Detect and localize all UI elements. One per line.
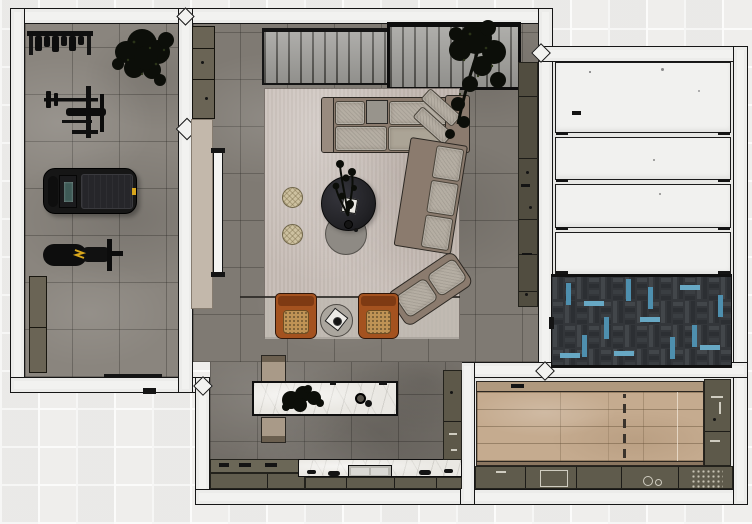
panel-speck: [659, 193, 661, 195]
sofa-seat-cushion: [421, 214, 454, 251]
ottoman: [282, 224, 303, 245]
cooktop-counter-surface: [210, 459, 305, 473]
sink-basin: [371, 468, 388, 475]
strip-item: [521, 184, 530, 187]
slatted-console-left: [262, 28, 389, 85]
white-panel-2: [555, 137, 731, 180]
sofa-armrest: [322, 98, 334, 152]
island-plant: [278, 383, 330, 415]
sofa-seat-cushion: [432, 145, 465, 182]
chair-cushion: [283, 310, 309, 334]
sofa-seat-cushion: [426, 180, 459, 217]
counter-item: [444, 469, 453, 473]
counter-item: [496, 471, 506, 473]
treadmill: [43, 168, 137, 214]
chair-cushion: [366, 310, 391, 334]
cooktop-burner: [265, 463, 277, 467]
cabinet-divider: [193, 79, 214, 80]
treadmill-end-cap: [48, 176, 58, 207]
island-fixture: [379, 382, 387, 385]
island-bench-bottom: [261, 417, 286, 443]
coffee-table-plant: [330, 148, 364, 220]
white-panel-1: [555, 62, 731, 133]
counter-item: [328, 471, 340, 476]
panel-tick: [556, 179, 568, 182]
dumbbell-rack: [27, 29, 93, 59]
gym-storage-cabinet: [29, 276, 47, 373]
island-bowl-small: [365, 400, 372, 407]
cabinet-divider: [394, 478, 395, 488]
wall-wardrobe-top: [538, 46, 748, 62]
cabinet-item: [205, 97, 208, 100]
island-bench-top: [261, 355, 286, 382]
cabinet-divider: [346, 478, 347, 488]
panel-tick: [718, 132, 730, 135]
treadmill-accent: [132, 188, 136, 195]
window-marker-nub: [143, 388, 156, 394]
utility-bottom-counter: [475, 466, 733, 489]
bench-cap: [262, 356, 285, 362]
counter-item: [419, 470, 431, 475]
counter-divider: [525, 467, 526, 488]
treadmill-screen: [64, 182, 73, 202]
weight-bench: [43, 238, 125, 272]
counter-sink: [348, 465, 392, 477]
wood-platform-floor: [476, 392, 704, 461]
ottoman: [282, 187, 303, 208]
utility-side-counter: [704, 379, 731, 466]
round-side-table: [320, 304, 353, 337]
herringbone-pattern: [552, 277, 731, 365]
cooktop-burner: [239, 463, 251, 467]
counter-item: [307, 470, 316, 474]
cabinet-divider: [444, 421, 461, 422]
island-fixture: [330, 382, 336, 385]
cabinet-divider: [193, 48, 214, 49]
light-seam-line: [677, 392, 678, 461]
cabinet-item: [449, 433, 457, 435]
strip-item: [525, 293, 528, 296]
treadmill-console: [59, 175, 77, 208]
strip-item: [522, 253, 532, 255]
door-cap: [211, 272, 225, 277]
cabinet-divider: [30, 327, 46, 328]
marble-sink-counter: [298, 459, 462, 477]
sink-basin: [351, 468, 369, 475]
strip-divider: [519, 158, 537, 159]
counter-bowl: [643, 476, 653, 486]
cabinet-item: [450, 391, 453, 394]
wall-counter-strip: [518, 62, 538, 307]
beige-cabinet-band: [191, 119, 213, 309]
counter-item: [713, 418, 716, 421]
table-bowl-small: [354, 228, 358, 232]
counter-divider: [576, 467, 577, 488]
door-cap: [211, 148, 225, 153]
wood-band-top: [476, 381, 704, 392]
rug-tab: [549, 317, 554, 329]
white-panel-4: [555, 232, 731, 275]
lounge-chair: [358, 293, 399, 339]
panel-tick: [556, 132, 568, 135]
panel-tick: [556, 227, 568, 230]
herringbone-rug: [551, 274, 732, 368]
chair-back-band: [278, 296, 314, 306]
dashed-divider-line: [623, 394, 626, 458]
window-marker: [104, 374, 162, 378]
strip-divider: [519, 291, 537, 292]
table-bowl: [344, 220, 353, 229]
treadmill-belt: [81, 174, 133, 209]
strip-divider: [519, 96, 537, 97]
kitchen-tall-cabinet: [443, 370, 462, 460]
strip-item: [526, 171, 529, 174]
sliding-door: [213, 151, 223, 275]
cabinet-item: [201, 61, 204, 64]
counter-divider: [678, 467, 679, 488]
white-panel-3: [555, 184, 731, 228]
band-item: [511, 384, 524, 388]
panel-handle: [572, 111, 581, 115]
strip-item: [529, 206, 532, 209]
cabinet-divider: [436, 478, 437, 488]
counter-speckle-tray: [691, 469, 723, 489]
panel-speck: [589, 71, 591, 73]
bench-cap: [262, 436, 285, 442]
lounge-chair: [275, 293, 317, 339]
counter-item: [719, 402, 721, 414]
wall-utility-left: [460, 362, 475, 505]
counter-divider: [705, 431, 730, 432]
counter-item: [710, 440, 720, 442]
panel-tick: [718, 227, 730, 230]
sofa-tray: [366, 100, 388, 124]
wall-left-main: [10, 8, 25, 393]
sink-counter-cabinets: [305, 477, 462, 489]
cooktop-counter-cabinets: [210, 473, 305, 489]
wall-right-outer: [733, 46, 748, 505]
strip-divider: [519, 219, 537, 220]
floor-plan-scene: [0, 0, 752, 524]
counter-bowl-small: [655, 479, 662, 486]
chair-back-band: [361, 296, 396, 306]
counter-sink: [540, 470, 568, 487]
panel-speck: [661, 68, 664, 71]
panel-speck: [653, 159, 655, 161]
panel-tick: [718, 179, 730, 182]
side-table-bowl: [333, 317, 342, 326]
cabinet-item: [451, 449, 457, 451]
potted-tree-large: [420, 14, 516, 146]
counter-item: [711, 396, 723, 398]
sofa-back-cushion: [335, 101, 365, 125]
potted-tree-gym: [104, 24, 182, 90]
cabinet-divider: [267, 474, 268, 488]
cooktop-burner: [219, 463, 229, 467]
panel-speck: [698, 90, 700, 92]
olive-wall-cabinet: [192, 26, 215, 119]
weight-machine: [42, 86, 112, 140]
counter-divider: [621, 467, 622, 488]
